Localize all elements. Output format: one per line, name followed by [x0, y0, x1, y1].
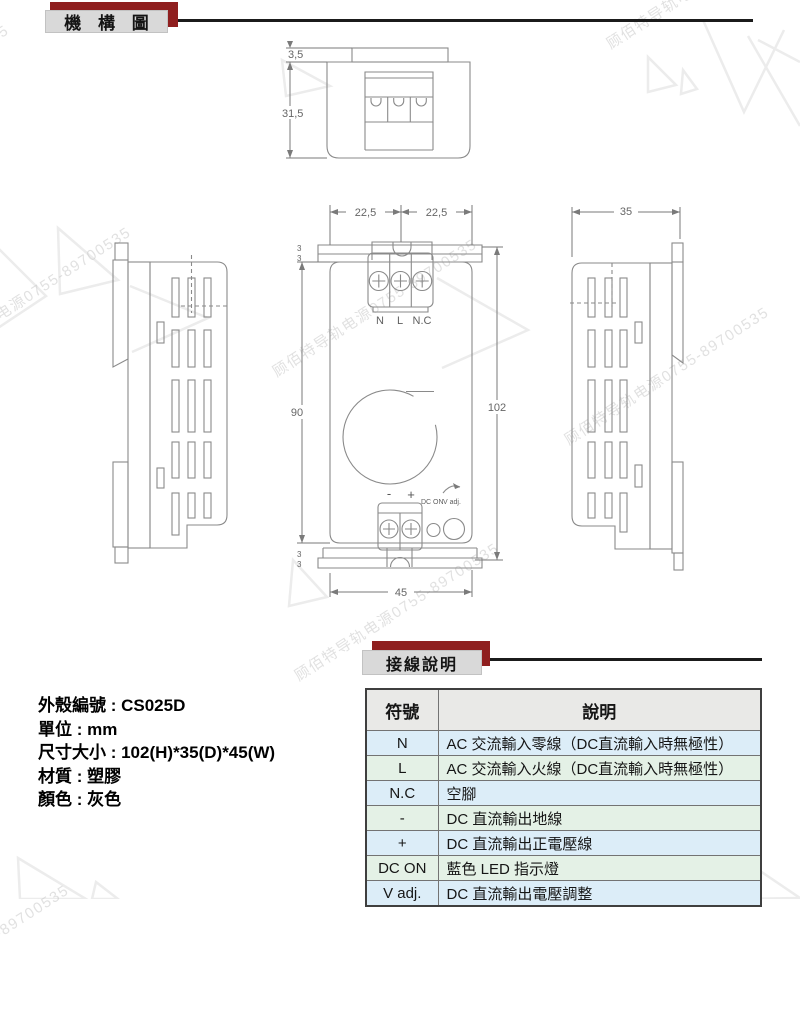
terminal-label-nc: N.C [413, 315, 432, 327]
left-side-view-drawing [105, 235, 260, 575]
table-row: + DC 直流輸出正電壓線 [366, 831, 761, 856]
table-row: N.C 空腳 [366, 781, 761, 806]
table-row: N AC 交流輸入零線（DC直流輸入時無極性） [366, 731, 761, 756]
symbol-cell: DC ON [366, 856, 438, 881]
page: { "header": { "title": "機 構 圖" }, "wirin… [0, 0, 800, 899]
top-view-dim-depth: 31,5 [282, 108, 303, 120]
watermark-text: 顾佰特导轨电源0755-89700535 [0, 879, 73, 1027]
front-dim-body-height: 90 [291, 407, 303, 419]
voltage-adjust-label: V adj. [443, 499, 461, 506]
led-label: DC ON [421, 499, 444, 506]
symbol-cell: V adj. [366, 881, 438, 907]
table-row: DC ON 藍色 LED 指示燈 [366, 856, 761, 881]
symbol-cell: N [366, 731, 438, 756]
description-cell: 藍色 LED 指示燈 [438, 856, 761, 881]
wiring-rule [478, 658, 762, 661]
front-dim-width: 45 [395, 587, 407, 599]
front-dim-total-height: 102 [488, 402, 506, 414]
top-view-drawing: 3,5 31,5 [280, 40, 490, 180]
front-view-drawing: 22,5 22,5 90 102 45 3 3 3 3 N L N.C - + … [285, 195, 520, 605]
section-title-mechanical: 機 構 圖 [45, 10, 168, 33]
front-dim-flange-bottom-1: 3 [297, 550, 302, 559]
table-header-symbol: 符號 [366, 689, 438, 731]
table-header-description: 說明 [438, 689, 761, 731]
description-cell: AC 交流輸入零線（DC直流輸入時無極性） [438, 731, 761, 756]
front-dim-half-left: 22,5 [355, 207, 376, 219]
table-header-row: 符號 說明 [366, 689, 761, 731]
front-dim-flange-top-1: 3 [297, 244, 302, 253]
spec-line-dimensions: 尺寸大小 : 102(H)*35(D)*45(W) [38, 741, 275, 765]
table-row: - DC 直流輸出地線 [366, 806, 761, 831]
section-title-wiring: 接線說明 [362, 650, 482, 675]
wiring-title-text: 接線說明 [386, 651, 458, 675]
spec-line-unit: 單位 : mm [38, 718, 275, 742]
spec-block: 外殼編號 : CS025D 單位 : mm 尺寸大小 : 102(H)*35(D… [38, 694, 275, 812]
description-cell: DC 直流輸出電壓調整 [438, 881, 761, 907]
right-side-view-drawing: 35 [555, 195, 710, 575]
output-label-minus: - [387, 486, 391, 501]
front-dim-half-right: 22,5 [426, 207, 447, 219]
description-cell: DC 直流輸出地線 [438, 806, 761, 831]
front-dim-flange-top-2: 3 [297, 254, 302, 263]
output-label-plus: + [407, 487, 415, 502]
symbol-cell: L [366, 756, 438, 781]
section-title-text: 機 構 圖 [64, 9, 154, 34]
symbol-cell: + [366, 831, 438, 856]
spec-line-material: 材質 : 塑膠 [38, 765, 275, 789]
top-view-dimension-lines [286, 48, 352, 158]
description-cell: 空腳 [438, 781, 761, 806]
top-view-dim-tab: 3,5 [288, 49, 303, 61]
left-view-outline [113, 243, 229, 563]
terminal-label-l: L [397, 315, 403, 327]
description-cell: DC 直流輸出正電壓線 [438, 831, 761, 856]
right-view-outline [570, 243, 683, 570]
spec-line-color: 顏色 : 灰色 [38, 788, 275, 812]
spec-line-case-number: 外殼編號 : CS025D [38, 694, 275, 718]
wiring-table: 符號 說明 N AC 交流輸入零線（DC直流輸入時無極性） L AC 交流輸入火… [365, 688, 762, 907]
table-row: L AC 交流輸入火線（DC直流輸入時無極性） [366, 756, 761, 781]
header-rule [170, 19, 753, 22]
symbol-cell: N.C [366, 781, 438, 806]
symbol-cell: - [366, 806, 438, 831]
top-view-outline [327, 48, 470, 158]
front-dim-flange-bottom-2: 3 [297, 560, 302, 569]
description-cell: AC 交流輸入火線（DC直流輸入時無極性） [438, 756, 761, 781]
right-view-dim-depth: 35 [620, 206, 632, 218]
front-view-outline [318, 242, 482, 568]
terminal-label-n: N [376, 315, 384, 327]
table-row: V adj. DC 直流輸出電壓調整 [366, 881, 761, 907]
